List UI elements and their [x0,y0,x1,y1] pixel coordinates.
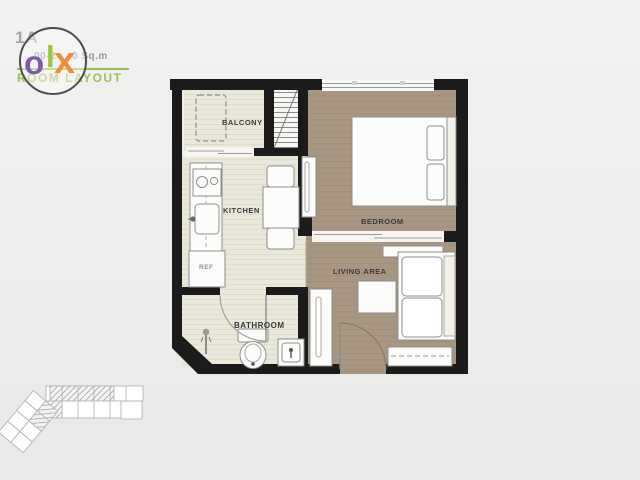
headboard [447,117,456,206]
dining-table [263,187,299,228]
toilet-tank [238,329,268,342]
pillow [427,164,444,200]
kitchen-label: KITCHEN [223,206,260,215]
olx-logo-letter-x: x [54,42,75,80]
dining-chair [267,166,294,187]
keyplan-highlighted-units [50,386,114,401]
coffee-table [358,281,396,313]
dining-chair [267,228,294,249]
balcony-label: BALCONY [222,118,263,127]
bathroom-label: BATHROOM [234,321,285,330]
floorplan-image: BALCONY KITCHEN BEDROOM LIVING AREA BATH… [0,0,640,480]
refrigerator-label: REF [199,264,214,271]
living-area-label: LIVING AREA [333,267,387,276]
kitchen-sink [195,204,219,234]
building-keyplan [0,386,143,453]
olx-logo: o l x [19,27,87,95]
olx-logo-letter-o: o [24,46,44,79]
bedroom-label: BEDROOM [361,217,404,226]
pillow [427,126,444,160]
